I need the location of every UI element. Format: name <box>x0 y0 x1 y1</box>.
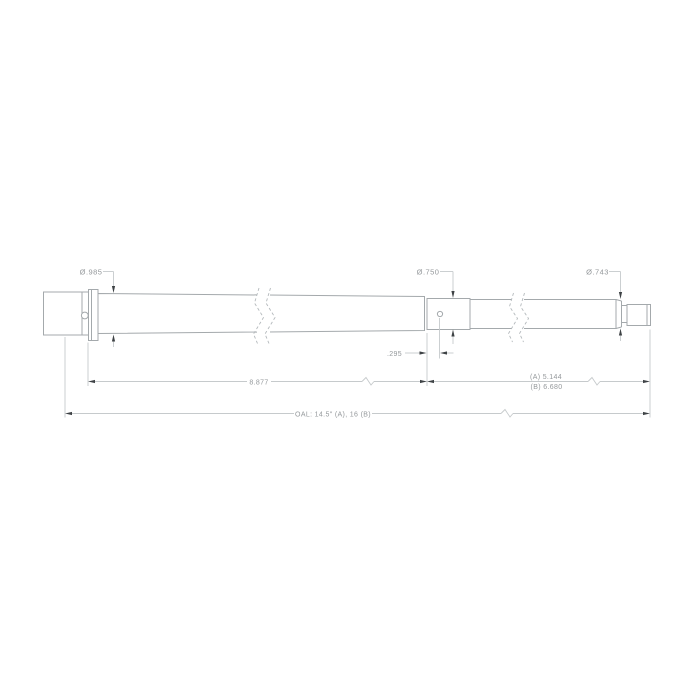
arrowhead-down-icon <box>112 286 115 293</box>
journal-body <box>427 299 470 330</box>
arrowhead-right-icon <box>643 412 650 415</box>
break-mark <box>588 378 600 386</box>
barrel-technical-drawing: Ø.985 Ø.750 Ø.743 .295 8 <box>0 0 700 700</box>
index-pin <box>81 312 88 319</box>
dim-gas-port-offset-label: .295 <box>387 351 402 358</box>
muzzle-threads <box>627 305 651 326</box>
arrowhead-left-icon <box>88 380 95 383</box>
dim-muzzle-label: Ø.743 <box>586 268 609 277</box>
arrowhead-down-icon <box>451 291 454 298</box>
arrowhead-up-icon <box>112 335 115 342</box>
gas-block-journal <box>427 299 470 330</box>
barrel-section-front <box>470 300 622 329</box>
gas-port <box>437 311 442 316</box>
muzzle-chamfer-bottom <box>616 327 622 329</box>
arrowhead-right-icon <box>420 380 427 383</box>
front-barrel-body <box>470 300 616 329</box>
arrowhead-left-icon <box>427 380 434 383</box>
dim-rear-length-label: 8.877 <box>249 379 268 386</box>
arrowhead-left-icon <box>65 412 72 415</box>
dim-overall-length-label: OAL: 14.5" (A), 16 (B) <box>295 411 371 418</box>
arrowhead-left-icon <box>440 351 447 354</box>
dim-front-length-b-label: (B) 6.680 <box>531 384 563 391</box>
break-mark <box>362 378 374 386</box>
arrowhead-up-icon <box>619 329 622 336</box>
barrel-nut-flange <box>89 290 99 341</box>
drawing-canvas: Ø.985 Ø.750 Ø.743 .295 8 <box>0 0 700 700</box>
muzzle-chamfer-top <box>616 300 622 302</box>
thread-relief-neck <box>622 306 628 323</box>
arrowhead-right-icon <box>643 380 650 383</box>
dim-front-length-a-label: (A) 5.144 <box>530 374 562 381</box>
arrowhead-down-icon <box>619 292 622 299</box>
dim-chamber-diameter-label: Ø.985 <box>80 268 103 277</box>
break-mask <box>257 290 270 338</box>
barrel-extension-block <box>44 292 89 335</box>
break-mark <box>501 410 513 418</box>
flange-body <box>89 290 99 341</box>
arrowhead-up-icon <box>451 330 454 337</box>
dim-gas-journal-label: Ø.750 <box>417 268 440 277</box>
dim-overall-length: OAL: 14.5" (A), 16 (B) <box>65 337 650 418</box>
arrowhead-right-icon <box>420 351 427 354</box>
dim-rear-length: 8.877 <box>88 333 427 386</box>
dim-front-length: (A) 5.144 (B) 6.680 <box>427 330 650 418</box>
